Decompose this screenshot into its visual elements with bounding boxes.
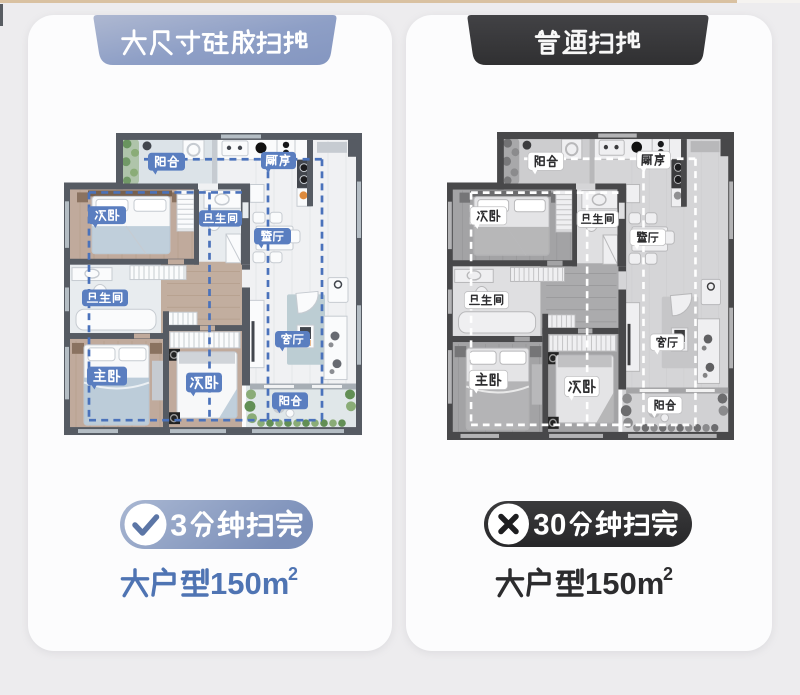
svg-text:0: 0 xyxy=(550,509,566,542)
svg-text:150m: 150m xyxy=(585,566,664,601)
svg-text:3: 3 xyxy=(533,509,549,542)
svg-text:150m: 150m xyxy=(210,566,289,601)
svg-text:2: 2 xyxy=(663,564,673,584)
svg-text:2: 2 xyxy=(288,564,298,584)
svg-text:3: 3 xyxy=(170,508,187,542)
